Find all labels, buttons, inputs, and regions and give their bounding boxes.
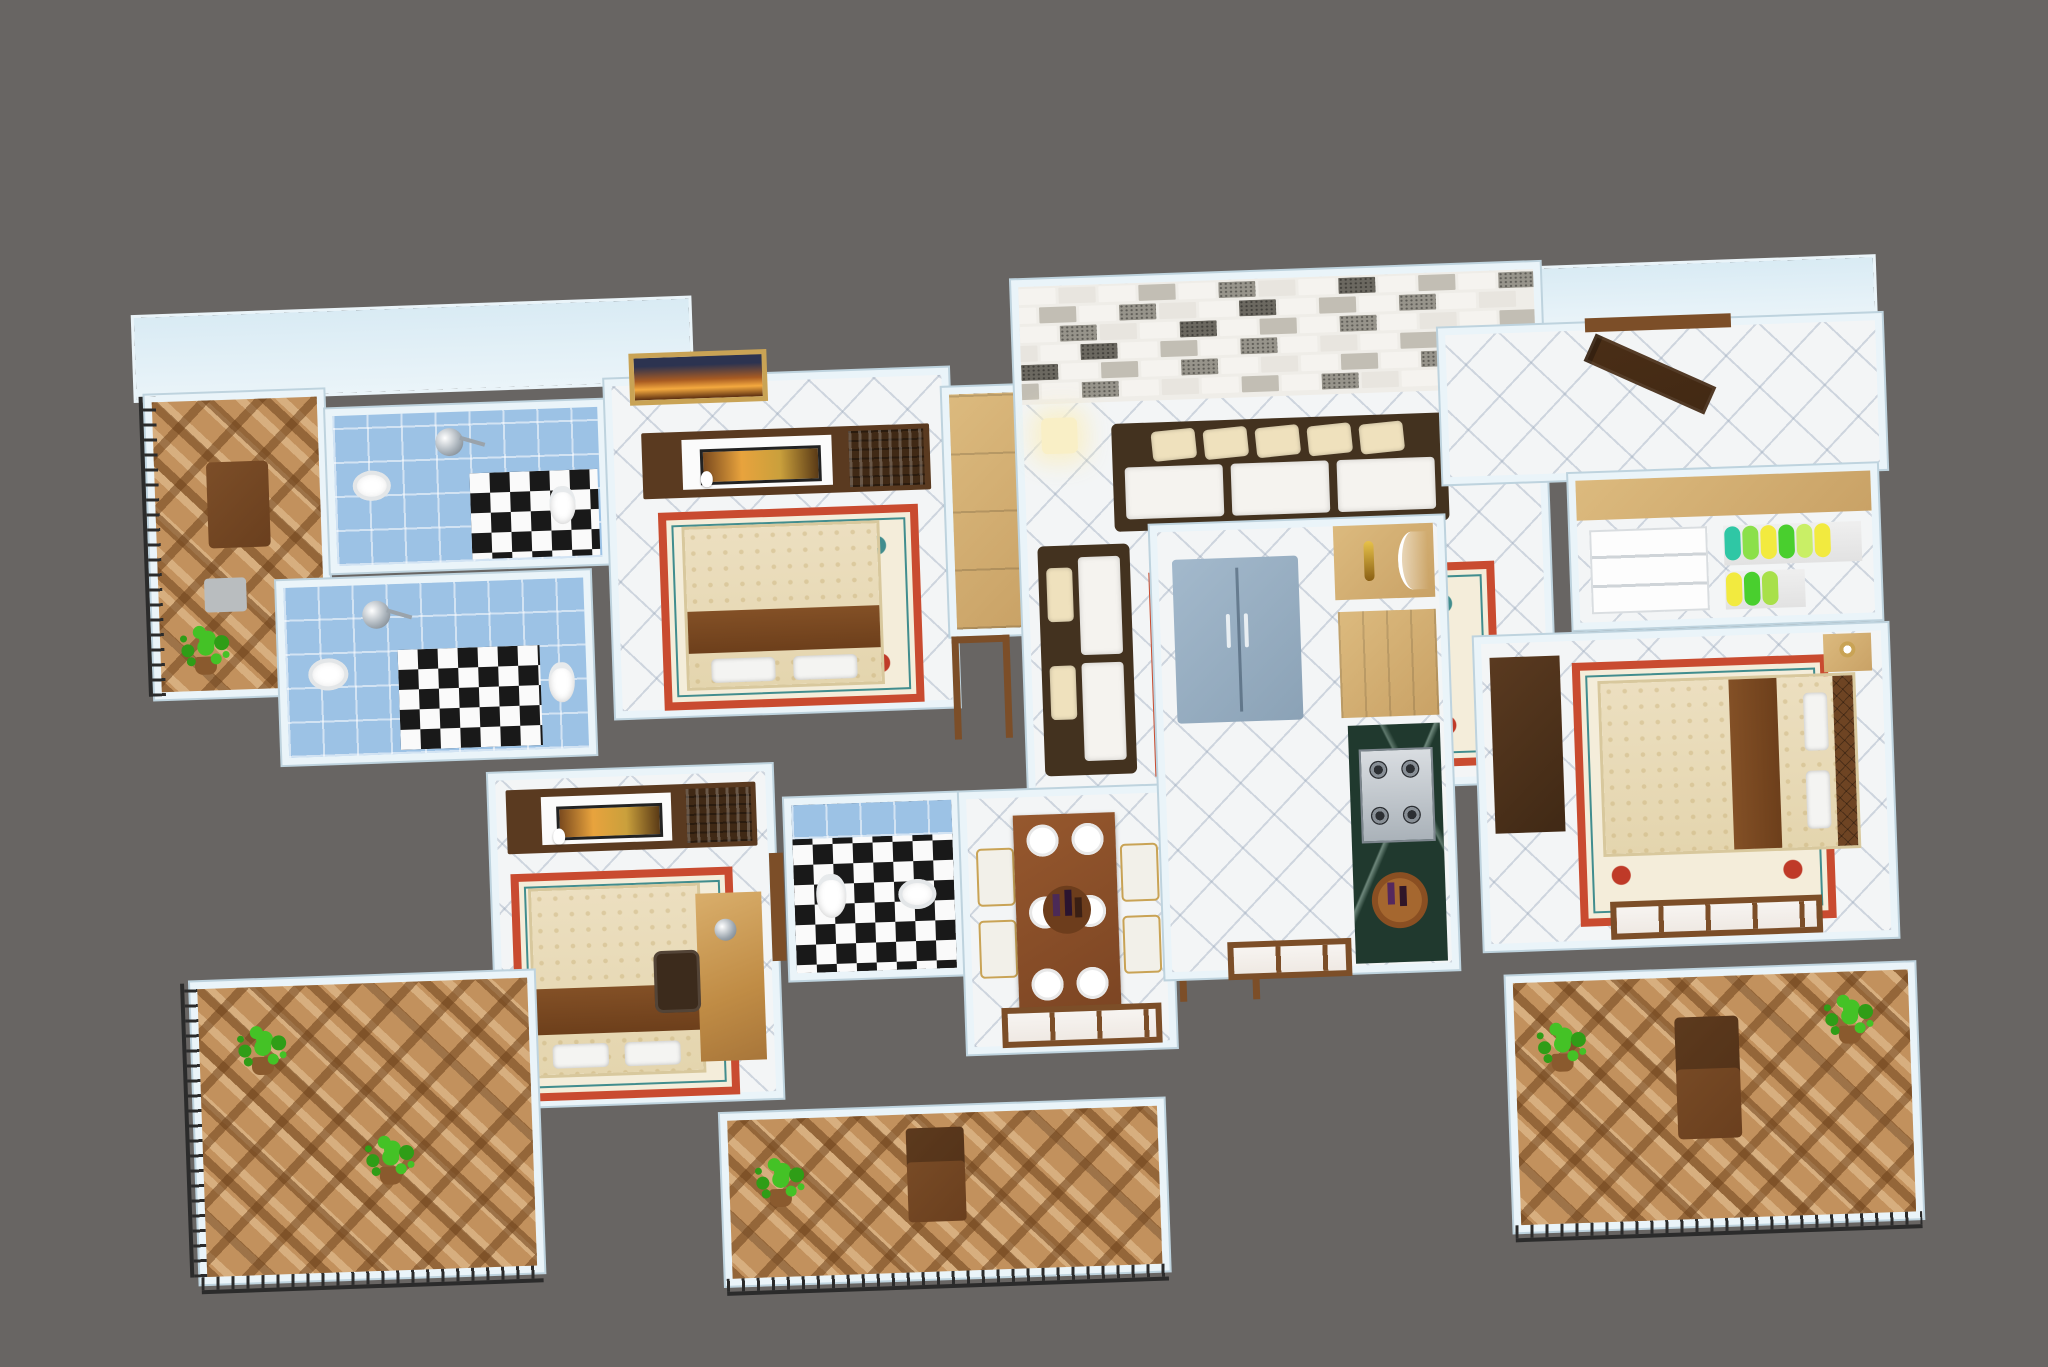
balcony-railing	[727, 1263, 1169, 1295]
balcony-railing	[1515, 1211, 1922, 1242]
brick	[1298, 278, 1336, 295]
tv-screen	[556, 803, 663, 841]
tall-cabinet	[1338, 609, 1440, 718]
vase	[700, 471, 713, 487]
spillow	[1254, 424, 1301, 458]
bed-pillow	[624, 1040, 681, 1066]
brick	[1458, 272, 1496, 289]
brick	[1281, 374, 1319, 391]
checker-floor	[398, 645, 543, 750]
hanging-clothes	[1725, 569, 1806, 610]
brick	[1498, 271, 1536, 288]
kitchen	[1157, 523, 1452, 973]
garment	[1762, 571, 1779, 606]
brick	[1339, 315, 1377, 332]
bed-pillow	[1803, 692, 1829, 751]
blue-tile-wall	[791, 800, 952, 840]
brick	[1060, 324, 1098, 341]
brick	[1040, 344, 1078, 361]
washbasin	[898, 878, 937, 909]
brick	[1018, 383, 1039, 400]
vase	[553, 828, 566, 844]
bedroom-3	[1481, 630, 1891, 944]
dining-chair	[1122, 915, 1162, 974]
burner	[1401, 759, 1420, 778]
brick	[1299, 316, 1337, 333]
toilet	[816, 874, 848, 919]
fridge-handle	[1226, 614, 1231, 648]
burner	[1403, 805, 1422, 824]
shower-icon	[435, 428, 464, 457]
sofa-pillow	[1049, 665, 1077, 720]
garment	[1742, 525, 1759, 560]
three-seat-sofa	[1111, 412, 1450, 532]
nightstand	[1823, 633, 1872, 673]
sofa-cushion	[1081, 662, 1126, 761]
brick	[1181, 358, 1219, 375]
bed-pillow	[793, 654, 858, 680]
plate	[1031, 968, 1064, 1001]
wine-bottle	[1399, 886, 1407, 906]
brick	[1401, 370, 1439, 387]
brick	[1479, 291, 1517, 308]
brick	[1459, 310, 1497, 327]
dining-chair	[976, 848, 1016, 907]
back-wall-face	[134, 299, 692, 400]
brick	[1360, 333, 1398, 350]
brick	[1162, 378, 1200, 395]
toilet	[548, 662, 575, 703]
armchair	[906, 1127, 967, 1223]
plant-pot	[252, 1057, 275, 1076]
brick	[1301, 354, 1339, 371]
balcony-bottom-left	[197, 978, 537, 1277]
potted-plant	[742, 1144, 819, 1221]
brick	[1120, 341, 1158, 358]
bed-pillow	[1806, 770, 1832, 829]
spillow	[1202, 426, 1249, 460]
dining-chair	[978, 920, 1018, 979]
brick	[1320, 334, 1358, 351]
brick	[1018, 288, 1056, 305]
brick	[1499, 309, 1537, 326]
dining-area	[966, 792, 1170, 1047]
garment	[1796, 524, 1813, 559]
marble-counter	[1348, 723, 1448, 964]
plant-pot	[195, 656, 218, 675]
brick	[1378, 275, 1416, 292]
brick	[1379, 313, 1417, 330]
balcony-railing	[180, 983, 207, 1277]
office-chair	[653, 950, 701, 1014]
dining-table	[1013, 812, 1122, 1011]
brick	[1218, 281, 1256, 298]
floor-plan	[132, 202, 1928, 1333]
brick	[1082, 381, 1120, 398]
bathroom-2	[283, 577, 589, 757]
plate	[1076, 966, 1109, 999]
balcony-bottom-right	[1513, 969, 1916, 1225]
plant-leaves	[197, 638, 215, 656]
shower-icon	[362, 600, 391, 629]
plant-leaves	[254, 1039, 272, 1057]
potted-plant	[224, 1012, 301, 1089]
bedroom2-door-frame	[769, 853, 787, 961]
entrance-door	[1584, 334, 1717, 415]
brick	[1122, 379, 1160, 396]
bedroom1-door-frame	[951, 635, 1013, 740]
checker-floor	[469, 469, 600, 559]
plant-pot	[1839, 1025, 1862, 1044]
table-lamp	[1839, 641, 1856, 658]
brick	[1220, 319, 1258, 336]
brick	[1020, 326, 1058, 343]
garment	[1778, 524, 1795, 559]
bathroom-3	[791, 800, 957, 973]
garment	[1744, 571, 1761, 606]
bed-runner	[1728, 678, 1782, 850]
spillow	[1358, 420, 1405, 454]
brick	[1119, 303, 1157, 320]
floor-lamp	[1041, 417, 1078, 454]
brick	[1101, 361, 1139, 378]
dressing-closet	[1575, 470, 1875, 622]
potted-plant	[352, 1121, 429, 1198]
dining-window	[1001, 1003, 1162, 1049]
desk-lamp	[714, 918, 737, 941]
brick	[1202, 376, 1240, 393]
bed-runner	[687, 605, 880, 654]
brick	[1140, 322, 1178, 339]
brick	[1341, 353, 1379, 370]
balcony-bottom-center	[727, 1106, 1162, 1279]
brick	[1280, 336, 1318, 353]
burner	[1371, 807, 1390, 826]
brick	[1018, 308, 1036, 325]
brick	[1141, 360, 1179, 377]
wine-bottle	[1075, 897, 1083, 917]
sofa-cushion	[1078, 556, 1123, 655]
brick	[1178, 282, 1216, 299]
render-canvas: { "scene": { "type": "3d-floor-plan-rend…	[0, 0, 2048, 1367]
kitchen-window	[1227, 938, 1352, 980]
wall-picture	[628, 349, 768, 406]
brick	[1418, 274, 1456, 291]
overhead-cabinet	[1575, 470, 1871, 520]
sofa-cushion	[1336, 457, 1436, 512]
plant-leaves	[1554, 1035, 1572, 1053]
brick	[1261, 355, 1299, 372]
spillow	[1150, 428, 1197, 462]
lounge-chair	[206, 460, 271, 548]
burner	[1369, 761, 1388, 780]
garment	[1760, 525, 1777, 560]
brick	[1100, 323, 1138, 340]
spillow	[1306, 422, 1353, 456]
plant-leaves	[1841, 1007, 1859, 1025]
bedroom-1	[611, 375, 952, 711]
brick	[1240, 337, 1278, 354]
brick	[1138, 284, 1176, 301]
brick	[1058, 286, 1096, 303]
drawer-unit	[1589, 526, 1710, 614]
bathroom-1	[332, 407, 602, 566]
sideboard	[1333, 523, 1436, 600]
brick	[1359, 295, 1397, 312]
balcony-railing	[201, 1265, 543, 1294]
tv-unit	[505, 782, 757, 855]
tv-slat-panel	[849, 429, 926, 487]
brick	[1419, 312, 1457, 329]
brick	[1079, 305, 1117, 322]
plant-pot	[770, 1189, 793, 1208]
brick	[1180, 320, 1218, 337]
garment	[1724, 526, 1741, 561]
brick	[1439, 292, 1477, 309]
bed-pillow	[711, 657, 776, 683]
brick	[1399, 294, 1437, 311]
breakfast-table	[1371, 871, 1429, 929]
garment	[1726, 572, 1743, 607]
brick	[1361, 371, 1399, 388]
brick	[1259, 317, 1297, 334]
dark-wardrobe	[1489, 655, 1565, 833]
potted-plant	[167, 611, 244, 688]
brick	[1200, 339, 1238, 356]
bed-pillow	[552, 1043, 609, 1069]
washbasin	[352, 470, 391, 501]
wine-bottle	[1387, 882, 1395, 904]
brick	[1018, 345, 1038, 362]
potted-plant	[1524, 1008, 1601, 1085]
brick	[1061, 362, 1099, 379]
brick	[1338, 277, 1376, 294]
plant-pot	[1551, 1053, 1574, 1072]
plate	[1071, 823, 1104, 856]
brick	[1279, 298, 1317, 315]
sofa-pillow-row	[1147, 422, 1408, 461]
fridge-handle	[1244, 613, 1249, 647]
brick	[1221, 357, 1259, 374]
sofa-cushion	[1231, 460, 1331, 515]
bedroom3-bed	[1600, 675, 1858, 854]
brick	[1199, 301, 1237, 318]
tv-unit	[641, 423, 931, 499]
plant-pot	[380, 1166, 403, 1185]
dining-chair	[1120, 843, 1160, 902]
tv-slat-panel	[686, 787, 753, 843]
brick	[1080, 343, 1118, 360]
bedroom3-window	[1610, 894, 1823, 939]
brick	[1159, 302, 1197, 319]
wine-bottle	[1064, 890, 1072, 916]
tall-wardrobe	[949, 392, 1025, 629]
tufted-headboard	[1832, 675, 1858, 846]
brick	[1319, 296, 1357, 313]
sofa-cushion	[1125, 464, 1225, 519]
brick	[1400, 332, 1438, 349]
brick	[1098, 285, 1136, 302]
brick	[1239, 299, 1277, 316]
brick	[1042, 382, 1080, 399]
entry-foyer	[1445, 320, 1880, 477]
washbasin	[308, 658, 349, 691]
brick	[1039, 306, 1077, 323]
gas-stove	[1359, 747, 1436, 844]
brick	[1241, 375, 1279, 392]
gold-decor	[1363, 541, 1374, 581]
lounge-chair	[1674, 1015, 1742, 1139]
refrigerator	[1172, 556, 1304, 724]
brick	[1321, 372, 1359, 389]
display-shelf	[1397, 531, 1429, 590]
garment	[1814, 523, 1831, 558]
brick	[1021, 364, 1059, 381]
balcony-railing	[139, 396, 166, 696]
chaise-sofa	[1037, 543, 1137, 776]
brick	[1258, 279, 1296, 296]
side-table	[204, 577, 247, 612]
bedroom-2	[495, 771, 776, 1100]
brick	[1160, 340, 1198, 357]
potted-plant	[1811, 980, 1888, 1057]
wine-bottle	[1052, 894, 1060, 916]
hanging-clothes	[1723, 521, 1862, 566]
plant-leaves	[382, 1148, 400, 1166]
sofa-pillow	[1046, 567, 1074, 622]
bedroom1-bed	[685, 523, 882, 688]
brick	[1381, 351, 1419, 368]
plant-leaves	[772, 1171, 790, 1189]
study-desk	[695, 891, 767, 1061]
tv-screen	[699, 446, 821, 485]
plate	[1026, 824, 1059, 857]
